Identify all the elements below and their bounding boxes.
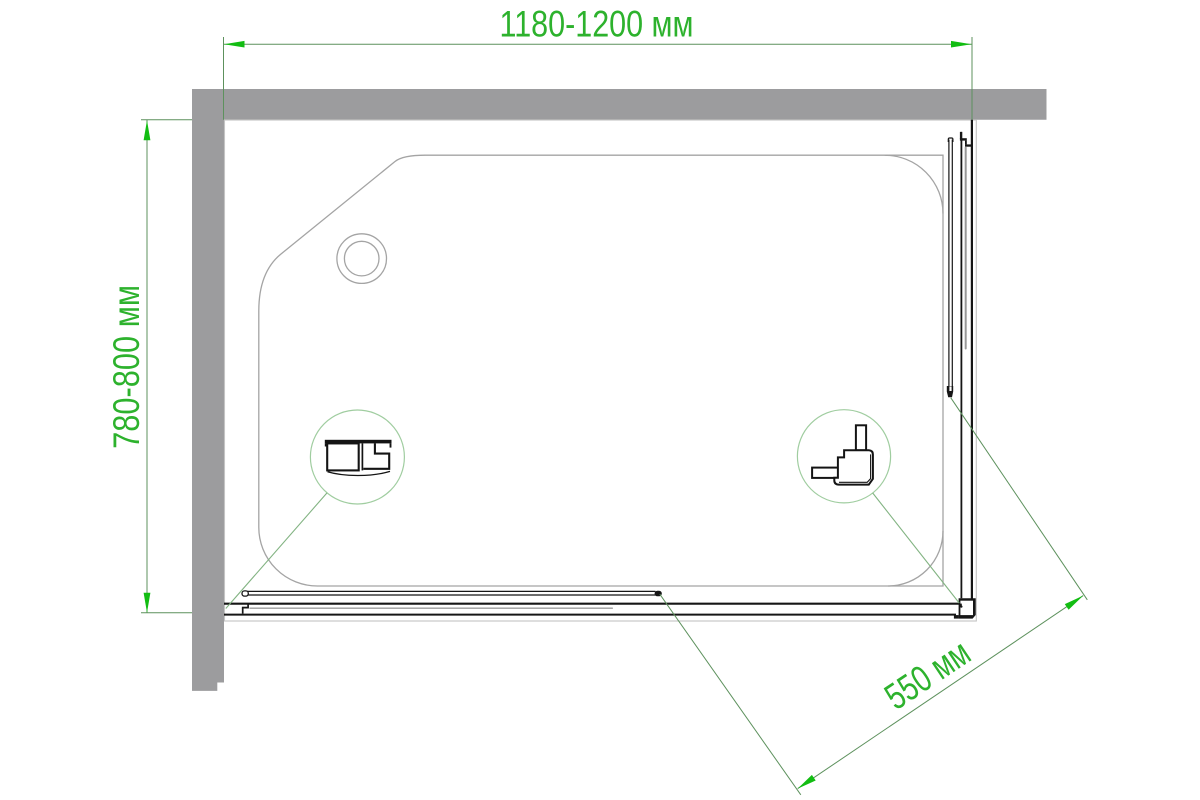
svg-text:1180-1200 мм: 1180-1200 мм [500,4,694,45]
svg-text:780-800 мм: 780-800 мм [106,285,147,449]
